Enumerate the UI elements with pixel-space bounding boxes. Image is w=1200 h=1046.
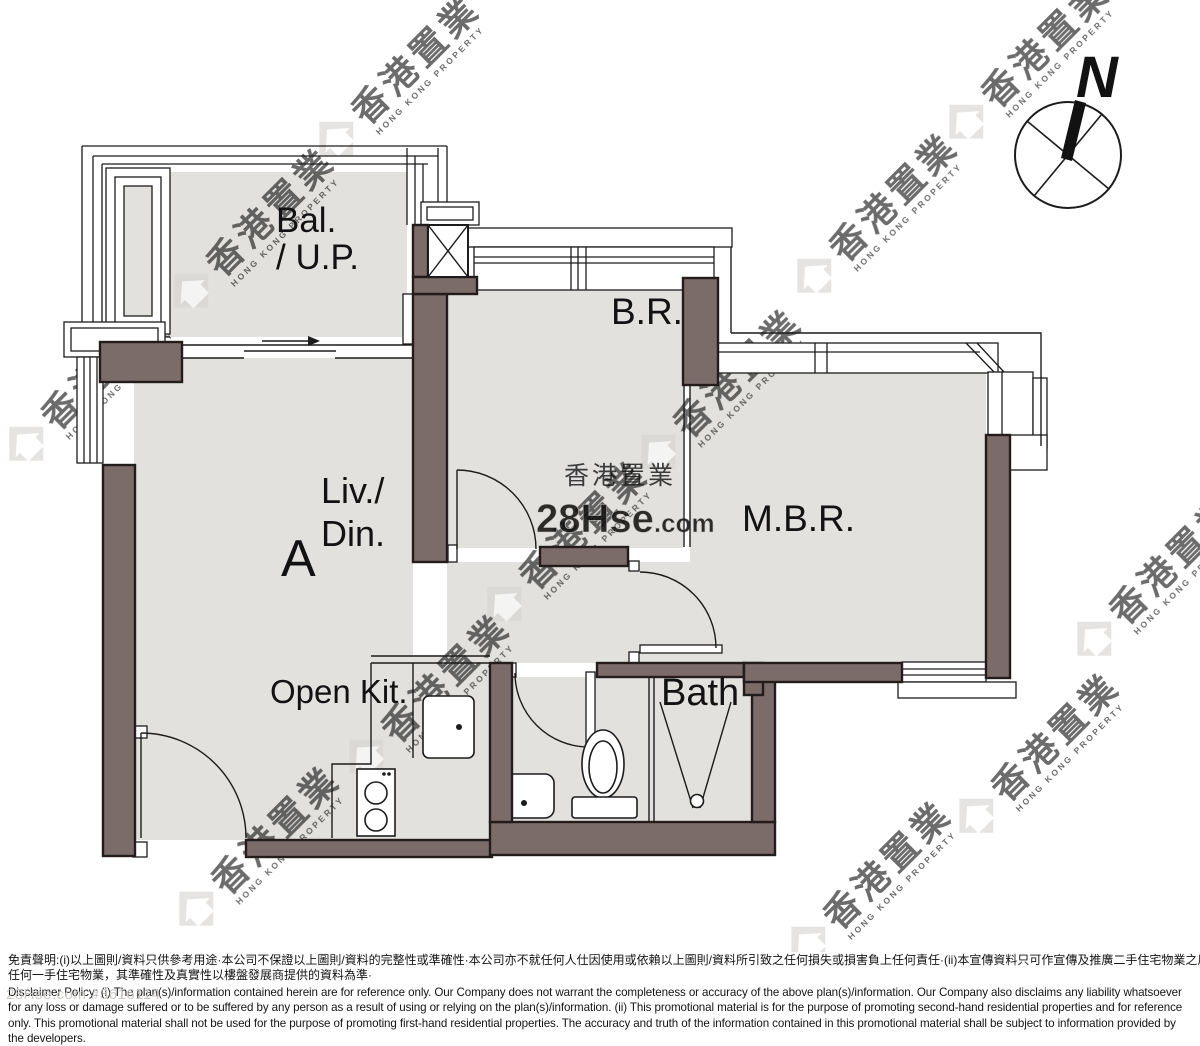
- room-label-living-2: Din.: [321, 513, 385, 554]
- lift-shaft: [428, 225, 468, 277]
- room-label-master-bedroom: M.B.R.: [742, 498, 855, 539]
- room-label-balcony-1: Bal.: [276, 201, 336, 240]
- room-label-bath: Bath: [661, 672, 739, 714]
- room-label-kitchen: Open Kit.: [270, 673, 408, 710]
- center-watermark-site: 28Hse.com: [536, 497, 715, 541]
- disclaimer-en: Disclaimer Policy: (i) The plan(s)/infor…: [8, 985, 1194, 1046]
- room-label-bedroom: B.R.: [611, 291, 683, 332]
- center-watermark-cjk: 香港置業: [564, 462, 676, 490]
- disclaimer-block: 免責聲明:(i)以上圖則/資料只供參考用途·本公司不保證以上圖則/資料的完整性或…: [8, 953, 1194, 1046]
- fridge: [423, 696, 474, 758]
- disclaimer-zh-line2: 任何一手住宅物業，其準確性及真實性以樓盤發展商提供的資料為準·: [8, 968, 1194, 983]
- room-label-living-1: Liv./: [321, 470, 384, 511]
- toilet-tank: [572, 797, 637, 818]
- unit-label: A: [281, 530, 316, 588]
- disclaimer-zh-line1: 免責聲明:(i)以上圖則/資料只供參考用途·本公司不保證以上圖則/資料的完整性或…: [8, 953, 1194, 968]
- fridge-handle: [456, 724, 462, 730]
- compass-north-label: N: [1076, 45, 1119, 110]
- shower-drain: [691, 795, 704, 808]
- room-label-balcony-2: / U.P.: [276, 238, 359, 277]
- listing-ref-watermark: 28Hse.com #3616114: [6, 986, 161, 1003]
- floor-plan-svg: 香港置業 HONG KONG PROPERTY 香港置業 28Hse.com: [0, 0, 1200, 952]
- basin-tap: [521, 800, 527, 806]
